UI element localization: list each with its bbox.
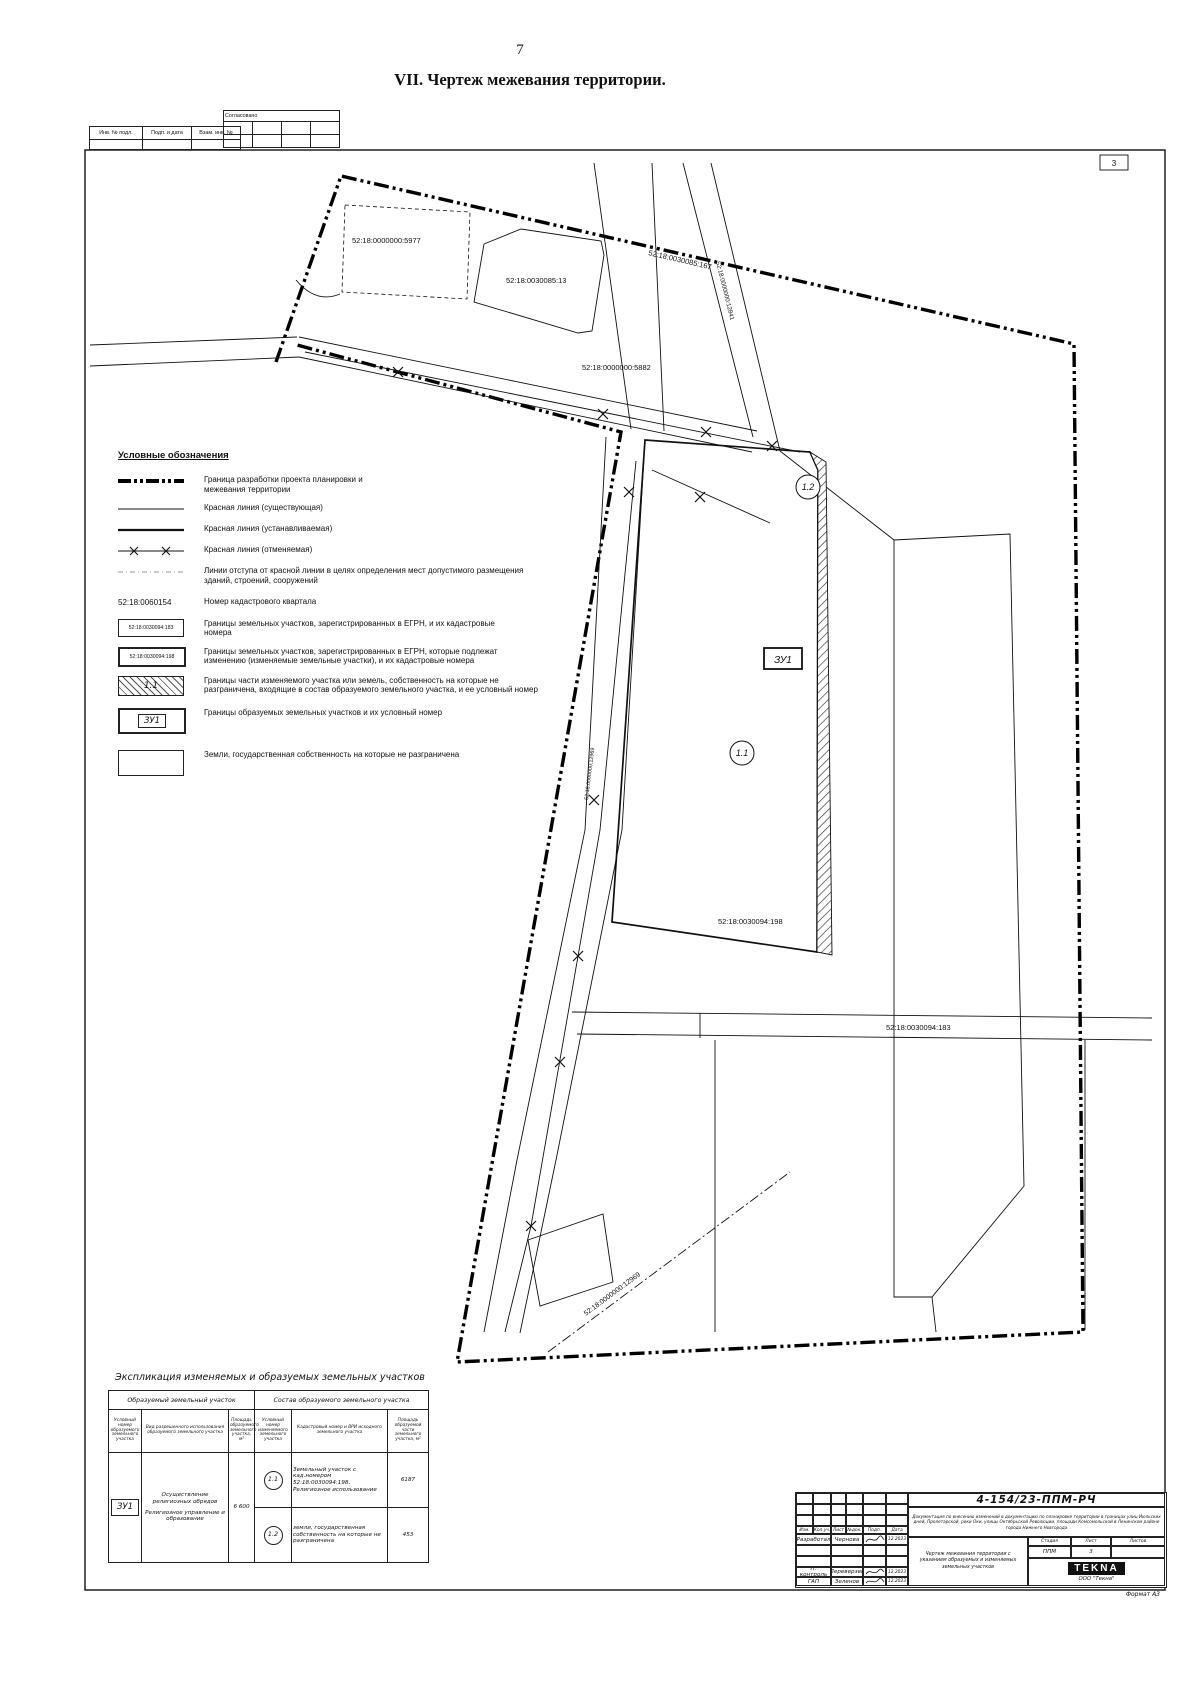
tb-date: 12.2023 (886, 1577, 908, 1586)
part-1-1-marker: 1.1 (736, 748, 749, 758)
zu1-marker: ЗУ1 (774, 655, 792, 666)
tb-role: ГАП (796, 1577, 831, 1586)
source-parcel-cell: земли, государственная собственность на … (292, 1508, 388, 1563)
legend-label: Номер кадастрового квартала (204, 597, 548, 606)
format-label: Формат А3 (1040, 1591, 1160, 1598)
legend: Условные обозначения Граница разработки … (118, 450, 548, 785)
page-title: VII. Чертеж межевания территории. (290, 70, 770, 90)
parcel-label: 52:18:0000000:12969 (584, 747, 596, 800)
sheet-title: Чертеж межевания территории с указанием … (908, 1537, 1028, 1586)
part-markers: 1.1 1.2 ЗУ1 (730, 475, 820, 765)
stamp-cell: Подп. и дата (143, 127, 192, 140)
stamp-cell: Инв. № подл. (90, 127, 143, 140)
legend-label: Линии отступа от красной линии в целях о… (204, 566, 534, 585)
parcel-label: 52:18:0000000:5882 (582, 363, 651, 372)
legend-item: 52:18:0060154 Номер кадастрового квартал… (118, 597, 548, 609)
tb-name: Зеленов (831, 1577, 863, 1586)
column-header: Площадь образуемой части земельного учас… (388, 1410, 429, 1453)
tb-col-header: Подп. (863, 1526, 886, 1534)
legend-item: ЗУ1 Границы образуемых земельных участко… (118, 708, 548, 734)
part-area-cell: 6187 (388, 1453, 429, 1508)
legend-item: Красная линия (существующая) (118, 503, 548, 515)
signature (863, 1534, 886, 1545)
tb-name: Чернова (831, 1534, 863, 1545)
legend-item: Линии отступа от красной линии в целях о… (118, 566, 548, 585)
table-group-header: Образуемый земельный участок (109, 1391, 255, 1410)
title-block: Изм. Кол.уч. Лист №док. Подп. Дата Разра… (795, 1492, 1167, 1588)
approval-stamp: Согласовано (223, 110, 340, 148)
tb-col-header: Дата (886, 1526, 908, 1534)
page-number: 7 (470, 42, 570, 59)
part-area-cell: 453 (388, 1508, 429, 1563)
tb-col-header: №док. (846, 1526, 863, 1534)
legend-label: Границы земельных участков, зарегистриро… (204, 647, 534, 666)
legend-label: Граница разработки проекта планировки и … (204, 475, 374, 494)
approved-label: Согласовано (224, 111, 340, 122)
sheet-value: 3 (1071, 1546, 1111, 1558)
column-header: Условный номер образуемого земельного уч… (109, 1410, 142, 1453)
tb-role: Разработал (796, 1534, 831, 1545)
legend-item: 52:18:0030094:183 Границы земельных учас… (118, 619, 548, 638)
column-header: Кадастровый номер и ВРИ исходного земель… (292, 1410, 388, 1453)
column-header: Вид разрешенного использования образуемо… (142, 1410, 229, 1453)
permitted-use-cell: Осуществление религиозных обрядов Религи… (142, 1453, 229, 1563)
part-number-cell: 1.1 (255, 1453, 292, 1508)
inventory-stamp: Инв. № подл. Подп. и дата Взам. инв. № (89, 126, 241, 150)
legend-label: Красная линия (существующая) (204, 503, 548, 512)
sheet-corner-number: 3 (1112, 159, 1117, 168)
legend-label: Границы образуемых земельных участков и … (204, 708, 548, 717)
red-line-planned-symbol (118, 524, 190, 536)
tb-date: 12.2023 (886, 1567, 908, 1577)
legend-label: Красная линия (отменяемая) (204, 545, 548, 554)
signature (863, 1577, 886, 1586)
legend-item: 52:18:0030094:198 Границы земельных учас… (118, 647, 548, 667)
setback-line (548, 1172, 790, 1352)
legend-item: Граница разработки проекта планировки и … (118, 475, 548, 494)
parcel-label: 52:18:0030085:167 (648, 248, 713, 271)
setback-line-symbol (118, 566, 190, 578)
legend-heading: Условные обозначения (118, 450, 548, 461)
legend-label: Границы земельных участков, зарегистриро… (204, 619, 504, 638)
legend-label: Границы части изменяемого участка или зе… (204, 676, 548, 695)
tb-date: 12.2023 (886, 1534, 908, 1545)
part-number-cell: 1.2 (255, 1508, 292, 1563)
state-land-symbol (118, 750, 190, 776)
hatched-part-symbol: 1.1 (118, 676, 190, 696)
legend-label: Красная линия (устанавливаемая) (204, 524, 548, 533)
project-description: Документация по внесению изменений в док… (908, 1507, 1165, 1537)
boundary-line-symbol (118, 475, 190, 487)
explication-table: Образуемый земельный участок Состав обра… (108, 1390, 429, 1563)
legend-item: Земли, государственная собственность на … (118, 750, 548, 776)
document-number: 4-154/23-ППМ-РЧ (908, 1493, 1165, 1507)
stage-value: ППМ (1028, 1546, 1071, 1558)
parcel-label: 52:18:0030094:183 (886, 1023, 951, 1032)
parcel-label: 52:18:0000000:12841 (714, 261, 735, 322)
company-name: ООО "Текна" (1078, 1576, 1114, 1582)
parcel-5977-outline (342, 205, 470, 299)
tb-col-header: Изм. (796, 1526, 813, 1534)
signature (863, 1567, 886, 1577)
explication-section: Экспликация изменяемых и образуемых земе… (108, 1372, 438, 1563)
red-line-cancelled-symbol (118, 545, 190, 557)
table-group-header: Состав образуемого земельного участка (255, 1391, 429, 1410)
zu-number-cell: ЗУ1 (109, 1453, 142, 1563)
registered-parcel-symbol: 52:18:0030094:183 (118, 619, 190, 637)
source-parcel-cell: Земельный участок с кад.номером 52:18:00… (292, 1453, 388, 1508)
tb-role: Н. контроль (796, 1567, 831, 1577)
legend-label: Земли, государственная собственность на … (204, 750, 534, 759)
explication-title: Экспликация изменяемых и образуемых земе… (108, 1372, 432, 1383)
cadastral-quarter-symbol: 52:18:0060154 (118, 597, 190, 609)
document-page: 3 (0, 0, 1200, 1697)
total-area-cell: 6 600 (229, 1453, 255, 1563)
company-cell: TEKNA ООО "Текна" (1028, 1558, 1165, 1586)
legend-item: Красная линия (отменяемая) (118, 545, 548, 557)
red-line-existing-symbol (118, 503, 190, 515)
hatched-part-sliver (810, 452, 832, 955)
legend-item: Красная линия (устанавливаемая) (118, 524, 548, 536)
column-header: Площадь образуемого земельного участка, … (229, 1410, 255, 1453)
tb-name: Переверзев (831, 1567, 863, 1577)
parcel-label: 52:18:0030085:13 (506, 276, 566, 285)
legend-item: 1.1 Границы части изменяемого участка ил… (118, 676, 548, 696)
parcel-198-outline (612, 440, 818, 952)
stage-label: Стадия (1028, 1537, 1071, 1546)
sheet-label: Лист (1071, 1537, 1111, 1546)
column-header: Условный номер изменяемого земельного уч… (255, 1410, 292, 1453)
company-logo: TEKNA (1068, 1562, 1124, 1575)
modified-parcel-symbol: 52:18:0030094:198 (118, 647, 190, 667)
part-1-2-marker: 1.2 (802, 482, 815, 492)
tb-col-header: Кол.уч. (813, 1526, 831, 1534)
tb-col-header: Лист (831, 1526, 846, 1534)
formed-parcel-symbol: ЗУ1 (118, 708, 190, 734)
parcel-label: 52:18:0000000:5977 (352, 236, 421, 245)
sheets-label: Листов (1111, 1537, 1165, 1546)
parcel-label: 52:18:0030094:198 (718, 917, 783, 926)
